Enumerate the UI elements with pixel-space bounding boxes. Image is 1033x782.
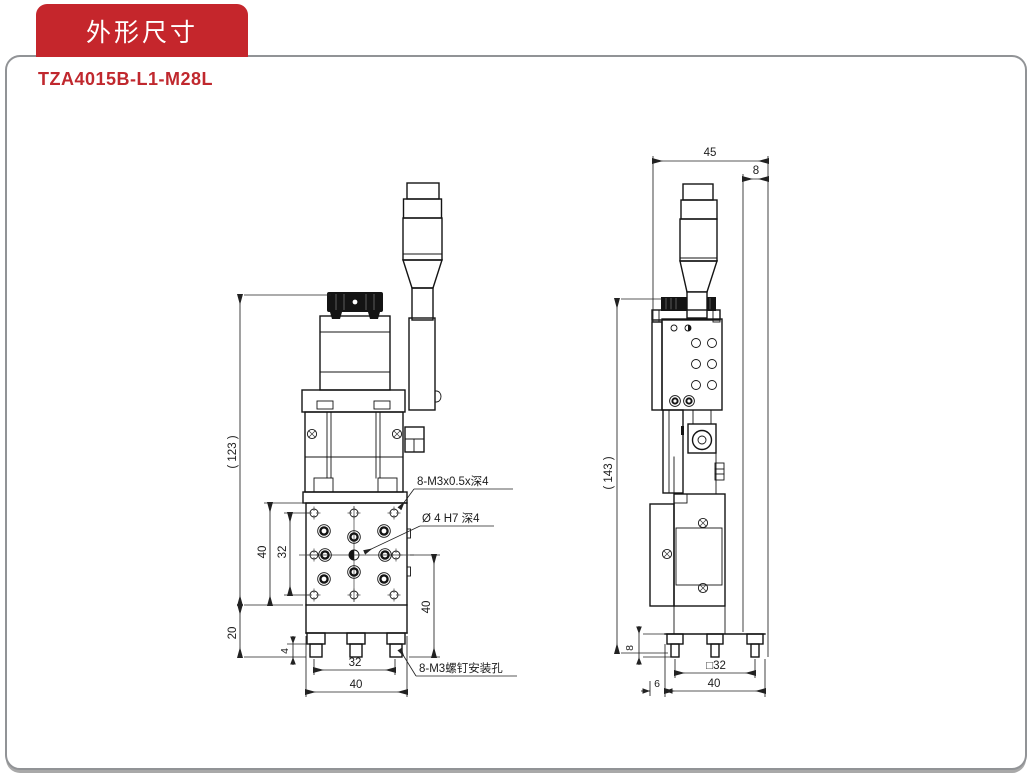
dimension-drawing: ( 123 ) 20 40 32 4 32 — [0, 0, 1033, 782]
front-xy-table-plate — [299, 503, 414, 605]
fv-note-pin-hole: Ø 4 H7 深4 — [422, 511, 480, 525]
front-base-feet — [306, 605, 407, 657]
fv-dim-right-height: 40 — [421, 601, 433, 614]
fv-dim-foot-height: 4 — [279, 648, 291, 654]
front-annotations: 8-M3x0.5x深4 Ø 4 H7 深4 8-M3螺钉安装孔 — [365, 474, 517, 676]
fv-dim-overall-height: ( 123 ) — [227, 435, 239, 468]
side-drive-mechanism — [663, 410, 724, 494]
sv-dim-edge-offset: 6 — [654, 678, 660, 690]
side-view: 45 8 ( 143 ) 8 □32 — [603, 147, 768, 697]
sv-dim-top-offset: 8 — [753, 165, 759, 177]
front-motor — [320, 292, 390, 390]
front-view: ( 123 ) 20 40 32 4 32 — [227, 183, 517, 697]
section-tab: 外形尺寸 — [36, 4, 248, 57]
fv-dim-hole-span-v: 32 — [277, 546, 289, 559]
model-title: TZA4015B-L1-M28L — [38, 69, 213, 90]
side-base-feet — [665, 606, 765, 657]
section-tab-label: 外形尺寸 — [86, 13, 198, 49]
fv-dim-plate-height: 40 — [257, 546, 269, 559]
fv-note-mount-holes: 8-M3螺钉安装孔 — [419, 661, 503, 675]
sv-dim-hole-square: □32 — [706, 660, 726, 672]
side-stage-body — [652, 310, 722, 410]
fv-dim-hole-span-h: 32 — [349, 657, 362, 669]
sv-dim-foot-height: 8 — [624, 645, 636, 651]
sv-dim-overall-height: ( 143 ) — [603, 456, 615, 489]
fv-dim-base-width: 40 — [350, 679, 363, 691]
fv-dim-base-height: 20 — [227, 627, 239, 640]
front-micrometer-head — [403, 183, 442, 452]
fv-note-tapped-holes: 8-M3x0.5x深4 — [417, 474, 489, 488]
front-z-stage-body — [302, 390, 407, 503]
side-micrometer-head — [661, 184, 717, 318]
sv-dim-base-width: 40 — [708, 678, 721, 690]
front-dimensions: ( 123 ) 20 40 32 4 32 — [227, 295, 440, 697]
sv-dim-top-width: 45 — [704, 147, 717, 159]
side-dimensions: 45 8 ( 143 ) 8 □32 — [603, 147, 768, 697]
side-lower-block — [650, 494, 725, 606]
datasheet-page: 外形尺寸 TZA4015B-L1-M28L — [0, 0, 1033, 782]
